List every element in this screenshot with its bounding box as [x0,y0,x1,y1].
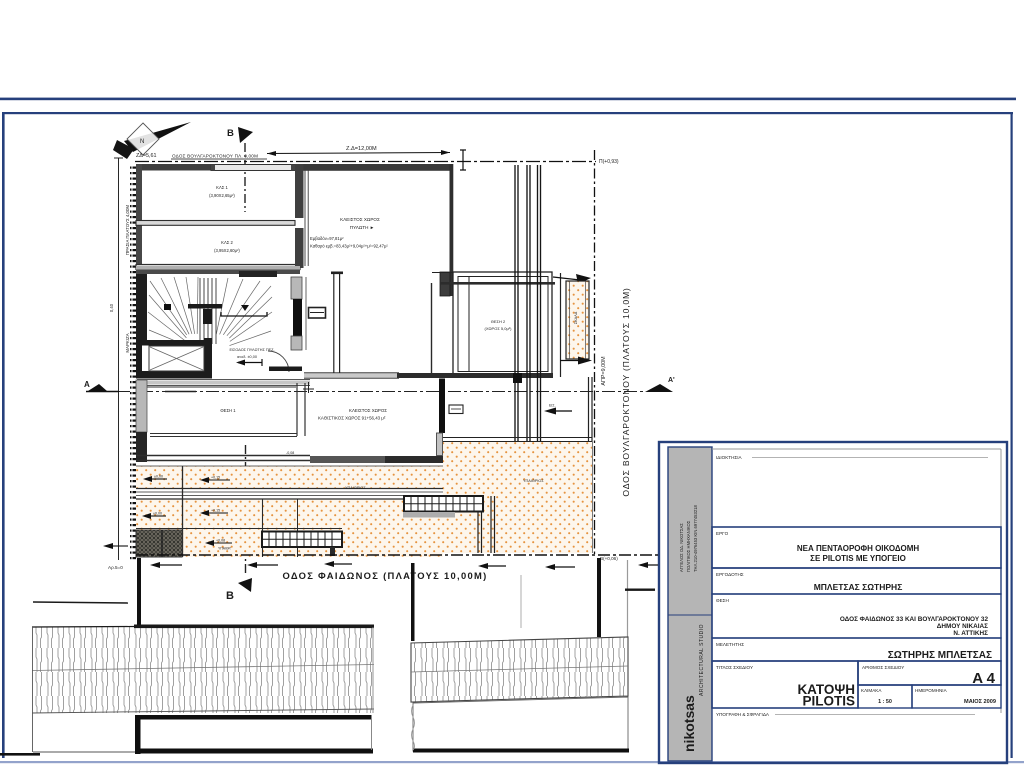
svg-text:ΠΟΛΙΤΙΚΟΣ ΗΜΗΧΑΝΙΚΟΣ: ΠΟΛΙΤΙΚΟΣ ΗΜΗΧΑΝΙΚΟΣ [686,520,691,572]
svg-text:ΝΕΑ ΠΕΝΤΑΟΡΟΦΗ ΟΙΚΟΔΟΜΗ: ΝΕΑ ΠΕΝΤΑΟΡΟΦΗ ΟΙΚΟΔΟΜΗ [797,544,919,553]
svg-text:Αρ.5=0: Αρ.5=0 [108,565,123,570]
svg-text:ΠΥΛΩΤΗ ►: ΠΥΛΩΤΗ ► [350,225,375,230]
svg-text:ΠΡΑΣΙΑ ΠΛΑΤΟΥΣ 4,00Μ: ΠΡΑΣΙΑ ΠΛΑΤΟΥΣ 4,00Μ [125,205,130,256]
svg-text:ΥΠΑΙΘΡΙΟΣ: ΥΠΑΙΘΡΙΟΣ [345,486,366,490]
svg-text:ΜΠΛΕΤΣΑΣ ΣΩΤΗΡΗΣ: ΜΠΛΕΤΣΑΣ ΣΩΤΗΡΗΣ [814,582,903,592]
svg-text:ΕΙΣΟΔΟΣ ΠΥΛΩΤΗΣ ΠΕΖ.: ΕΙΣΟΔΟΣ ΠΥΛΩΤΗΣ ΠΕΖ. [229,348,274,352]
svg-text:ΙΔΙΟΚΤΗΣΙΑ: ΙΔΙΟΚΤΗΣΙΑ [716,455,742,460]
svg-text:(3,95Χ2,60μ²): (3,95Χ2,60μ²) [214,248,240,253]
svg-text:ανοδ. ±0,00: ανοδ. ±0,00 [237,355,257,359]
svg-text:ΣΕ PILOTIS ΜΕ ΥΠΟΓΕΙΟ: ΣΕ PILOTIS ΜΕ ΥΠΟΓΕΙΟ [810,554,906,563]
svg-text:ΕΡΓΟΔΟΤΗΣ: ΕΡΓΟΔΟΤΗΣ [716,572,744,577]
svg-text:PILOTIS: PILOTIS [802,694,855,709]
svg-text:ΖΔ=5,61: ΖΔ=5,61 [136,153,157,159]
svg-text:ΣΚΑΛΑ: ΣΚΑΛΑ [574,311,578,324]
svg-text:B: B [226,590,234,602]
svg-text:ΟΔΟΣ ΒΟΥΛΓΑΡΟΚΤΟΝΟΥ (ΠΛΑΤΟΥΣ 1: ΟΔΟΣ ΒΟΥΛΓΑΡΟΚΤΟΝΟΥ (ΠΛΑΤΟΥΣ 10,0Μ) [621,287,631,496]
svg-text:ΚΛΕΙΣΤΟΣ ΧΩΡΟΣ: ΚΛΕΙΣΤΟΣ ΧΩΡΟΣ [349,408,387,413]
svg-text:ΣΩΤΗΡΗΣ ΜΠΛΕΤΣΑΣ: ΣΩΤΗΡΗΣ ΜΠΛΕΤΣΑΣ [888,650,992,661]
svg-text:ΥΠΟΓΡΑΦΗ & ΣΦΡΑΓΙΔΑ: ΥΠΟΓΡΑΦΗ & ΣΦΡΑΓΙΔΑ [716,712,770,717]
svg-text:Εμβαδόν=97,81μ²: Εμβαδόν=97,81μ² [310,236,344,241]
svg-text:ΟΔΟΣ ΦΑΙΔΩΝΟΣ (ΠΛΑΤΟΥΣ 10,00Μ): ΟΔΟΣ ΦΑΙΔΩΝΟΣ (ΠΛΑΤΟΥΣ 10,00Μ) [282,570,487,581]
svg-text:ΑRCHITECTURAL STUDIO: ΑRCHITECTURAL STUDIO [699,624,705,696]
svg-text:ΑΓΓΕΛΟΣ ΟΔ. ΝΙΚΟΤΣΑΣ: ΑΓΓΕΛΟΣ ΟΔ. ΝΙΚΟΤΣΑΣ [679,523,684,572]
svg-text:ΟΔΟΣ ΒΟΥΛΓΑΡΟΚΤΟΝΟΥ ΠΛ. 9,00Μ: ΟΔΟΣ ΒΟΥΛΓΑΡΟΚΤΟΝΟΥ ΠΛ. 9,00Μ [172,154,258,159]
svg-text:ΕΙΣ.: ΕΙΣ. [549,404,556,408]
svg-text:ΤΙΤΛΟΣ ΣΧΕΔΙΟΥ: ΤΙΤΛΟΣ ΣΧΕΔΙΟΥ [716,665,753,670]
svg-text:nikotsas: nikotsas [681,695,697,752]
svg-text:ΘΕΣΗ 1: ΘΕΣΗ 1 [220,408,236,413]
svg-text:±0,00: ±0,00 [154,475,163,479]
svg-text:ΜΑΙΟΣ 2009: ΜΑΙΟΣ 2009 [964,699,996,705]
svg-text:B: B [227,128,234,139]
svg-text:ΚΛΕΙΣΤΟΣ ΧΩΡΟΣ: ΚΛΕΙΣΤΟΣ ΧΩΡΟΣ [340,217,380,222]
svg-text:ΚΑΘΙΣΤΙΚΟΣ ΧΩΡΟΣ 91+56,43 μ²: ΚΑΘΙΣΤΙΚΟΣ ΧΩΡΟΣ 91+56,43 μ² [318,416,386,421]
svg-text:Καθαρό εμβ.=83,43μ²+9,04μ²+μ²=: Καθαρό εμβ.=83,43μ²+9,04μ²+μ²=92,47μ² [310,244,388,249]
svg-text:(ΧΩΡΟΣ 5,0μ²): (ΧΩΡΟΣ 5,0μ²) [485,326,513,331]
svg-text:N: N [140,139,144,145]
svg-text:ΤΗΛ.210-4976453 ΚΙΝ.6977453218: ΤΗΛ.210-4976453 ΚΙΝ.6977453218 [693,505,698,572]
svg-text:ΟΔΟΣ ΦΑΙΔΩΝΟΣ 33 ΚΑΙ ΒΟΥΛΓΑΡΟΚ: ΟΔΟΣ ΦΑΙΔΩΝΟΣ 33 ΚΑΙ ΒΟΥΛΓΑΡΟΚΤΟΝΟΥ 32 [840,616,989,623]
svg-text:ΘΕΣΗ 2: ΘΕΣΗ 2 [491,319,506,324]
svg-text:+0,15: +0,15 [211,509,220,513]
svg-text:+0,08: +0,08 [216,539,225,543]
svg-text:Β(+0,06): Β(+0,06) [600,556,618,561]
svg-text:ΥΠΑΙΘΡΙΟΣ: ΥΠΑΙΘΡΙΟΣ [523,479,544,483]
svg-text:ΕΡΓΟ: ΕΡΓΟ [716,531,729,536]
svg-text:A: A [84,380,90,389]
svg-text:ΑΡΙΘΜΟΣ ΣΧΕΔΙΟΥ: ΑΡΙΘΜΟΣ ΣΧΕΔΙΟΥ [862,665,904,670]
svg-text:ΔΗΜΟΥ ΝΙΚΑΙΑΣ: ΔΗΜΟΥ ΝΙΚΑΙΑΣ [937,623,988,630]
svg-text:Ν. ΑΤΤΙΚΗΣ: Ν. ΑΤΤΙΚΗΣ [953,630,988,637]
svg-text:(3,90Χ2,65μ²): (3,90Χ2,65μ²) [209,193,235,198]
svg-text:A': A' [668,377,675,384]
svg-text:±0,00: ±0,00 [153,512,162,516]
svg-text:ΥΠΑΙΘΡ.: ΥΠΑΙΘΡ. [218,547,232,551]
svg-text:ΜΑΡΚΙΖΑ: ΜΑΡΚΙΖΑ [125,333,130,352]
svg-text:ΚΛΣ 1: ΚΛΣ 1 [216,185,228,190]
svg-text:Ζ.Δ=12,00Μ: Ζ.Δ=12,00Μ [346,146,377,152]
svg-text:ΑΠΡ=9,00Μ: ΑΠΡ=9,00Μ [601,356,607,386]
svg-text:ΗΜΕΡΟΜΗΝΙΑ: ΗΜΕΡΟΜΗΝΙΑ [915,688,948,693]
svg-text:ΚΛΙΜΑΚΑ: ΚΛΙΜΑΚΑ [861,688,882,693]
svg-text:ΜΕΛΕΤΗΤΗΣ: ΜΕΛΕΤΗΤΗΣ [716,642,744,647]
svg-text:Π(+0,93): Π(+0,93) [599,159,619,165]
svg-text:+0,15: +0,15 [211,476,220,480]
svg-text:ΚΛΣ 2: ΚΛΣ 2 [221,240,233,245]
svg-text:-0,08: -0,08 [286,451,294,455]
svg-text:ΘΕΣΗ: ΘΕΣΗ [716,598,729,603]
svg-text:1 : 50: 1 : 50 [878,699,892,705]
svg-text:0,40: 0,40 [109,303,114,312]
